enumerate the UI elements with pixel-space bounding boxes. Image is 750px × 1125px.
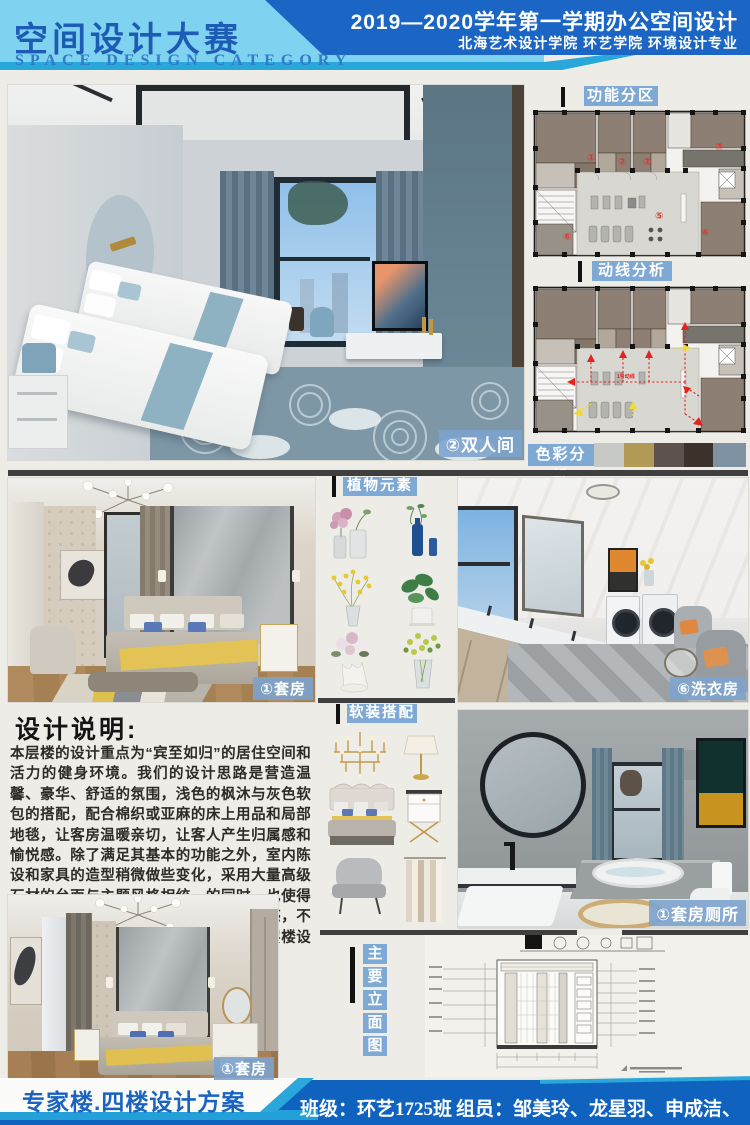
tv-screen <box>372 261 428 331</box>
artwork <box>60 550 106 600</box>
bed <box>100 596 260 696</box>
table-lamp <box>404 736 438 780</box>
sconce <box>106 977 113 988</box>
color-swatch <box>713 443 746 467</box>
orange-art <box>608 548 638 592</box>
divider <box>8 470 748 476</box>
coffee-table <box>664 648 698 678</box>
soft-furnishing-items <box>322 730 452 928</box>
suite-bottom-label: ①套房 <box>214 1057 274 1080</box>
sconce <box>208 977 215 988</box>
elevation-title-char: 面 <box>363 1013 387 1033</box>
twin-room-photo: ②双人间 <box>8 85 524 460</box>
bed <box>94 1011 224 1081</box>
room-number: ⑥ <box>563 232 571 243</box>
elevation-title-char: 要 <box>363 967 387 987</box>
mirror <box>522 515 584 618</box>
sink-counter <box>458 868 576 884</box>
room-number: ② <box>618 157 626 168</box>
sconce <box>158 570 166 582</box>
artwork <box>696 738 746 828</box>
washing-machine <box>642 594 678 648</box>
room-number: ⑤ <box>655 211 663 222</box>
washing-machine <box>606 596 640 646</box>
plant-monstera <box>399 572 441 626</box>
elevation-drawing <box>425 935 750 1077</box>
section-color-analysis: 色彩分析 <box>528 444 594 466</box>
section-soft-furnishing: 软装搭配 <box>347 704 417 723</box>
plant-hydrangea <box>330 508 371 558</box>
artwork <box>10 937 42 1005</box>
header-school-line: 北海艺术设计学院 环艺学院 环境设计专业 <box>458 33 738 53</box>
color-swatch <box>624 443 654 467</box>
section-function-zoning: 功能分区 <box>584 86 658 106</box>
section-bar <box>336 704 340 724</box>
route-label: 1号动线 <box>617 373 635 380</box>
bathtub <box>592 858 684 888</box>
room-number: ④ <box>701 228 709 239</box>
room-number: ① <box>587 153 595 164</box>
vanity-mirror <box>222 987 252 1025</box>
twin-room-label: ②双人间 <box>439 430 522 457</box>
black-faucet <box>510 842 515 870</box>
tv-cabinet <box>346 333 442 359</box>
section-plants: 植物元素 <box>343 477 417 496</box>
section-bar <box>332 476 336 497</box>
footer-project-title: 专家楼.四楼设计方案 <box>22 1083 245 1117</box>
suite-bedroom2-photo: ①套房 <box>8 895 278 1082</box>
armchair <box>30 626 76 674</box>
elevation-title-char: 图 <box>363 1036 387 1056</box>
circulation-plan: 1号动线 <box>533 286 747 434</box>
plant-elements <box>322 502 452 698</box>
curtain-item <box>404 858 446 922</box>
vanity-desk <box>212 1023 258 1059</box>
ceiling-light <box>586 484 620 500</box>
divider <box>318 698 455 703</box>
window-sheer <box>42 917 68 1065</box>
section-bar <box>578 261 582 282</box>
suite-mid-label: ①套房 <box>253 677 313 700</box>
sconce <box>292 570 300 582</box>
laundry-label: ⑥洗衣房 <box>670 677 746 700</box>
section-circulation: 动线分析 <box>592 261 672 281</box>
plant-magnolia <box>331 632 369 692</box>
nightstand-item <box>406 790 442 842</box>
function-zoning-plan: ① ② ② ③ ④ ⑤ ⑥ <box>533 110 747 258</box>
table-lamp <box>22 343 56 373</box>
color-swatch <box>654 443 684 467</box>
plant-daisies <box>403 633 440 688</box>
lounge-chair <box>310 307 334 337</box>
color-swatch <box>684 443 713 467</box>
room-number: ② <box>643 157 651 168</box>
plant-yellow-spray <box>332 570 372 626</box>
design-note-title: 设计说明: <box>15 710 138 746</box>
bathroom-label: ①套房厕所 <box>649 900 746 926</box>
footer-members: 组员：邹美玲、龙星羽、申成洁、付成军 <box>456 1094 750 1125</box>
suite-bedroom-photo: ①套房 <box>8 478 315 702</box>
plant-blue-bottles <box>407 504 438 556</box>
laundry-room-photo: ⑥洗衣房 <box>458 478 748 702</box>
section-bar <box>350 947 355 1003</box>
bed-item <box>328 784 396 845</box>
flower-vase <box>644 570 654 586</box>
bathroom-photo: ①套房厕所 <box>458 710 748 928</box>
color-swatch <box>594 443 624 467</box>
elevation-title-char: 立 <box>363 990 387 1010</box>
footer-class: 班级：环艺1725班 <box>300 1094 452 1121</box>
shower-curtain <box>662 748 684 868</box>
nightstand-gold <box>260 624 298 672</box>
gold-vases <box>422 317 426 333</box>
room-number: ③ <box>715 142 723 153</box>
design-poster: 空间设计大赛 SPACE DESIGN CATEGORY 2019—2020学年… <box>0 0 750 1125</box>
nightstand <box>74 1029 100 1061</box>
armchair-item <box>332 858 386 914</box>
poster-title-en: SPACE DESIGN CATEGORY <box>15 52 352 70</box>
round-mirror <box>480 732 586 838</box>
header-term-line: 2019—2020学年第一学期办公空间设计 <box>351 6 738 36</box>
section-bar <box>561 87 565 107</box>
elevation-title-char: 主 <box>363 944 387 964</box>
shower-curtain <box>592 748 612 872</box>
sink-basin <box>458 886 564 926</box>
nightstand <box>8 375 68 449</box>
